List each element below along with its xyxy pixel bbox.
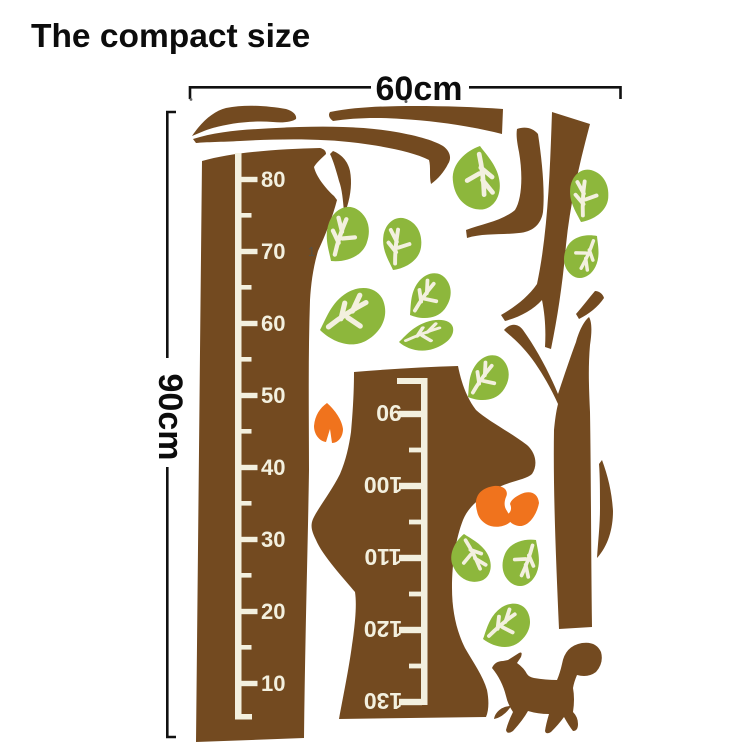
svg-text:70: 70 bbox=[261, 239, 285, 264]
svg-text:130: 130 bbox=[364, 688, 402, 714]
svg-text:1: 1 bbox=[308, 244, 315, 259]
svg-text:20: 20 bbox=[261, 599, 285, 624]
svg-text:120: 120 bbox=[364, 616, 402, 642]
svg-text:The compact size: The compact size bbox=[31, 18, 310, 55]
svg-text:40: 40 bbox=[261, 455, 285, 480]
svg-text:90: 90 bbox=[376, 400, 402, 426]
svg-text:90cm: 90cm bbox=[151, 374, 189, 461]
svg-text:80: 80 bbox=[261, 167, 285, 192]
svg-text:30: 30 bbox=[261, 527, 285, 552]
svg-text:110: 110 bbox=[364, 544, 401, 570]
svg-text:60: 60 bbox=[261, 311, 285, 336]
svg-text:60cm: 60cm bbox=[376, 70, 463, 108]
svg-text:10: 10 bbox=[261, 671, 285, 696]
svg-text:50: 50 bbox=[261, 383, 285, 408]
svg-text:100: 100 bbox=[364, 472, 402, 498]
